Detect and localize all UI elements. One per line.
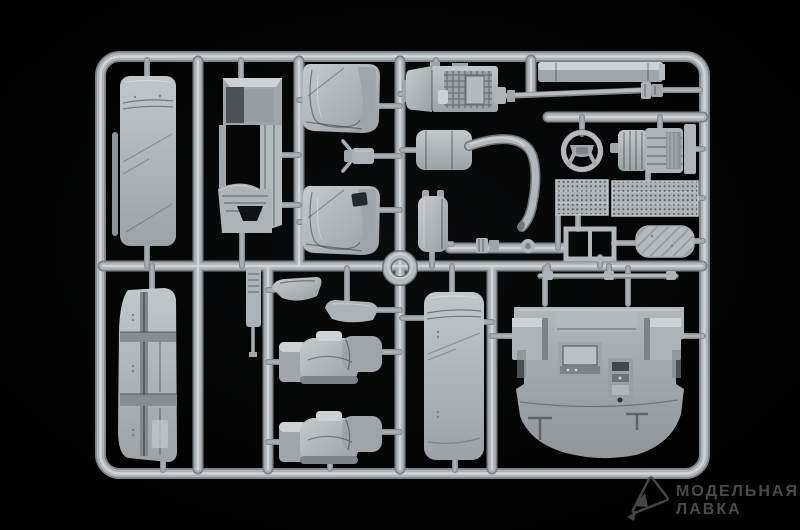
watermark-line1: МОДЕЛЬНАЯ [676,483,799,500]
part-thin-rod [112,132,118,236]
part-bunk-mattress-upper [120,76,176,246]
sprue-photo: МОДЕЛЬНАЯ ЛАВКА [0,0,800,530]
part-tank [418,190,448,252]
part-pipe-coupler [476,238,499,253]
part-seat-backrest-1 [302,64,380,133]
part-tread-plate [636,226,694,257]
control-column [608,358,633,406]
part-seat-backrest-2 [302,186,380,255]
part-cab-floor-panel [512,307,684,458]
part-armrest-console [325,300,377,322]
sprue-scene: МОДЕЛЬНАЯ ЛАВКА [0,0,800,530]
part-roof-fairing-bar [538,62,665,82]
tv-box [558,342,602,376]
part-steering-wheel [561,130,604,173]
part-mesh-grille-2 [612,181,698,216]
watermark-line2: ЛАВКА [676,501,742,518]
part-cab-rear-wall [218,78,282,233]
part-bunk-mattress-lower [424,292,484,460]
part-mesh-grille-1 [556,180,608,215]
part-folded-bunk-panel [118,288,177,462]
part-disc-cap [521,239,535,253]
part-engine-block [402,62,498,112]
